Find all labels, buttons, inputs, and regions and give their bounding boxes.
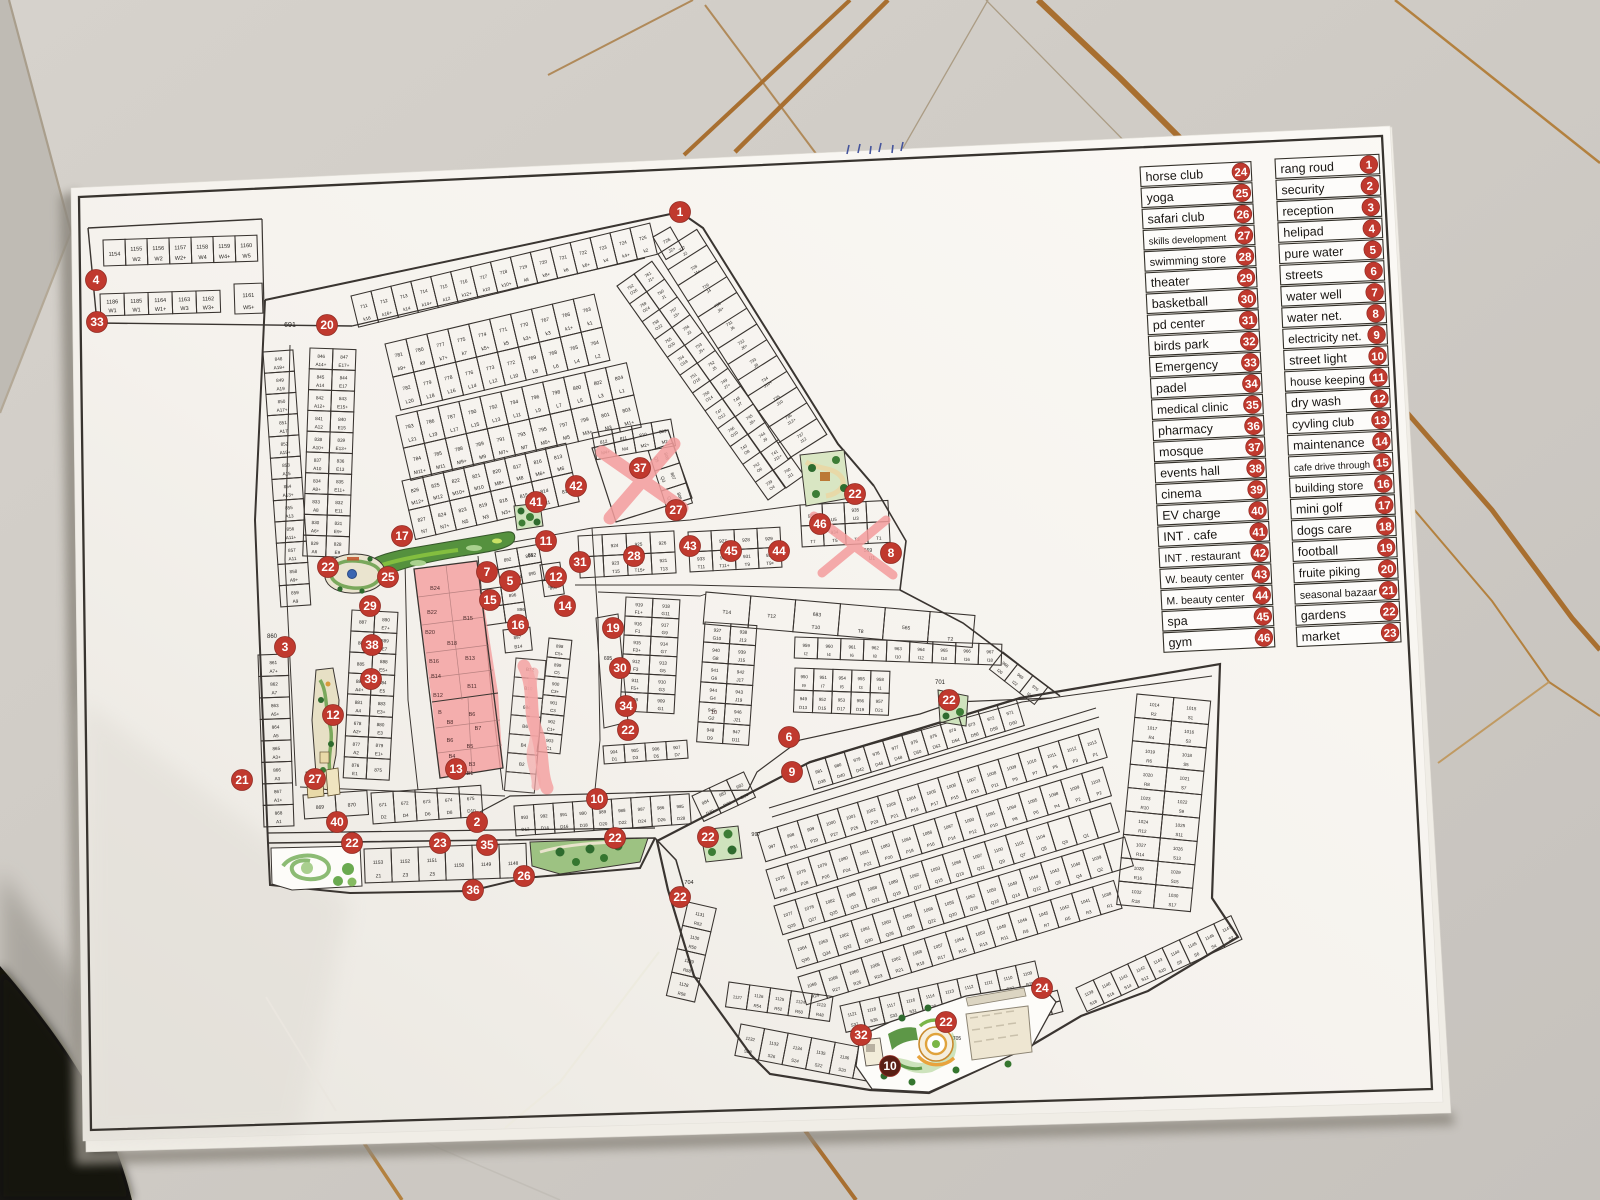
svg-text:22: 22	[345, 836, 359, 850]
svg-text:40: 40	[330, 815, 344, 829]
svg-text:streets: streets	[1285, 267, 1323, 283]
svg-text:A14: A14	[316, 383, 325, 388]
svg-text:32: 32	[854, 1028, 868, 1042]
svg-text:S9: S9	[1178, 809, 1184, 815]
svg-text:A13+: A13+	[282, 492, 293, 498]
svg-text:865: 865	[272, 746, 280, 751]
svg-text:D9: D9	[707, 735, 714, 740]
svg-text:T12: T12	[767, 613, 776, 620]
svg-text:13: 13	[449, 762, 463, 776]
svg-text:923: 923	[612, 560, 620, 565]
svg-text:R12: R12	[1138, 828, 1147, 834]
svg-text:909: 909	[657, 698, 665, 703]
svg-text:G11: G11	[661, 611, 670, 616]
svg-text:848: 848	[275, 356, 283, 362]
svg-text:833: 833	[312, 499, 320, 504]
svg-text:21: 21	[235, 773, 249, 787]
svg-text:B22: B22	[427, 610, 437, 616]
svg-text:B6: B6	[447, 738, 454, 744]
svg-text:rang roud: rang roud	[1280, 160, 1334, 176]
svg-text:horse club: horse club	[1145, 167, 1203, 184]
svg-text:fruite piking: fruite piking	[1299, 564, 1361, 581]
svg-text:860: 860	[267, 634, 278, 640]
svg-text:839: 839	[337, 438, 345, 443]
svg-text:25: 25	[381, 570, 395, 584]
svg-text:10: 10	[590, 792, 604, 806]
svg-text:E3: E3	[377, 730, 383, 735]
svg-text:gym: gym	[1168, 635, 1192, 650]
svg-text:J21: J21	[733, 717, 741, 723]
svg-text:theater: theater	[1150, 274, 1190, 290]
svg-text:862: 862	[270, 682, 278, 687]
svg-text:1028: 1028	[1134, 866, 1145, 872]
svg-text:W1: W1	[132, 307, 140, 313]
svg-text:1029: 1029	[1170, 869, 1181, 875]
svg-text:835: 835	[336, 479, 344, 484]
svg-text:A3+: A3+	[272, 755, 281, 760]
svg-text:water well: water well	[1285, 287, 1342, 304]
svg-text:36: 36	[466, 883, 480, 897]
svg-text:mosque: mosque	[1159, 443, 1204, 459]
svg-text:942: 942	[737, 669, 745, 675]
svg-text:Z1: Z1	[376, 873, 382, 879]
svg-text:D20: D20	[599, 821, 608, 827]
svg-text:14: 14	[1375, 436, 1389, 449]
svg-text:I14: I14	[941, 656, 948, 661]
svg-text:21: 21	[1382, 585, 1396, 598]
svg-text:904: 904	[610, 749, 618, 755]
svg-text:937: 937	[713, 628, 721, 634]
svg-text:955: 955	[857, 676, 865, 681]
svg-text:907: 907	[673, 745, 681, 751]
svg-text:828: 828	[334, 542, 342, 547]
svg-text:4: 4	[1368, 223, 1376, 235]
svg-text:683: 683	[812, 612, 821, 619]
svg-text:847: 847	[340, 354, 348, 359]
svg-text:678: 678	[354, 721, 362, 726]
svg-text:23: 23	[433, 836, 447, 850]
svg-text:safari club: safari club	[1147, 210, 1205, 227]
svg-text:953: 953	[838, 697, 846, 702]
svg-text:1020: 1020	[1143, 772, 1154, 778]
svg-text:956: 956	[857, 698, 865, 703]
svg-text:A17: A17	[279, 428, 288, 434]
svg-text:1162: 1162	[202, 296, 214, 302]
svg-text:W4+: W4+	[219, 254, 231, 260]
svg-text:905: 905	[631, 748, 639, 754]
svg-text:R14: R14	[1136, 852, 1145, 858]
svg-text:R2: R2	[1151, 711, 1158, 717]
svg-text:7: 7	[1371, 287, 1378, 299]
svg-text:W5+: W5+	[243, 305, 255, 311]
svg-text:G5: G5	[659, 668, 666, 673]
svg-text:42: 42	[569, 479, 583, 493]
svg-text:915: 915	[633, 640, 641, 645]
svg-text:A11: A11	[288, 556, 297, 562]
svg-text:D24: D24	[638, 818, 647, 824]
svg-text:705: 705	[953, 1036, 962, 1042]
svg-text:B6: B6	[522, 724, 528, 730]
svg-text:27: 27	[308, 772, 322, 786]
svg-text:D7: D7	[674, 752, 681, 757]
svg-text:944: 944	[709, 687, 717, 693]
svg-text:R10: R10	[1140, 805, 1149, 811]
svg-text:1151: 1151	[427, 858, 438, 864]
svg-text:952: 952	[819, 697, 827, 702]
svg-text:B15: B15	[463, 616, 473, 622]
svg-text:E17+: E17+	[338, 363, 349, 368]
svg-text:855: 855	[285, 505, 293, 511]
svg-text:22: 22	[939, 1015, 953, 1029]
svg-text:A19: A19	[276, 386, 285, 392]
svg-text:W3: W3	[180, 306, 188, 312]
svg-text:834: 834	[313, 478, 321, 483]
svg-text:986: 986	[657, 805, 665, 811]
svg-text:1015: 1015	[1186, 705, 1197, 711]
svg-text:867: 867	[274, 789, 282, 794]
svg-text:18: 18	[1379, 521, 1393, 534]
svg-text:924: 924	[611, 543, 619, 548]
svg-text:849: 849	[276, 377, 284, 383]
svg-text:42: 42	[1253, 548, 1266, 561]
svg-text:832: 832	[335, 500, 343, 505]
svg-text:842: 842	[316, 395, 324, 400]
svg-text:1158: 1158	[196, 244, 208, 250]
svg-text:20: 20	[320, 318, 334, 332]
svg-text:E5+: E5+	[379, 667, 388, 672]
svg-text:845: 845	[317, 374, 325, 379]
svg-text:836: 836	[337, 458, 345, 463]
svg-text:918: 918	[662, 604, 670, 609]
svg-text:T14: T14	[722, 609, 731, 616]
svg-text:B13: B13	[465, 656, 475, 662]
svg-text:R4: R4	[1148, 735, 1155, 741]
svg-text:866: 866	[273, 767, 281, 772]
svg-text:dogs care: dogs care	[1297, 521, 1353, 537]
svg-text:947: 947	[732, 729, 740, 735]
svg-text:A15+: A15+	[279, 450, 290, 456]
svg-text:950: 950	[800, 674, 808, 679]
svg-text:C5+: C5+	[555, 651, 564, 657]
svg-text:985: 985	[676, 804, 684, 810]
svg-text:841: 841	[315, 416, 323, 421]
svg-text:34: 34	[619, 699, 633, 713]
svg-text:1025: 1025	[1175, 822, 1186, 828]
svg-text:T15+: T15+	[634, 567, 645, 573]
svg-text:33: 33	[90, 315, 104, 329]
svg-text:31: 31	[573, 555, 587, 569]
svg-text:674: 674	[445, 797, 453, 803]
svg-text:31: 31	[1242, 315, 1256, 328]
svg-text:900: 900	[552, 681, 560, 687]
svg-text:S11: S11	[1175, 832, 1184, 838]
svg-text:840: 840	[338, 417, 346, 422]
svg-text:1160: 1160	[240, 243, 252, 249]
svg-text:EV charge: EV charge	[1162, 506, 1221, 523]
svg-text:43: 43	[683, 539, 697, 553]
svg-text:D6: D6	[424, 811, 431, 816]
svg-text:880: 880	[377, 722, 385, 727]
svg-text:17: 17	[1378, 500, 1391, 513]
svg-text:1017: 1017	[1147, 725, 1158, 731]
svg-text:879: 879	[375, 743, 383, 748]
svg-text:864: 864	[272, 724, 280, 729]
svg-text:844: 844	[340, 375, 348, 380]
svg-text:1186: 1186	[106, 299, 118, 305]
svg-text:A4+: A4+	[355, 687, 364, 692]
svg-text:870: 870	[347, 802, 356, 809]
svg-text:A8+: A8+	[312, 487, 321, 492]
svg-text:W2+: W2+	[175, 255, 187, 261]
svg-text:35: 35	[1246, 400, 1260, 413]
svg-text:34: 34	[1245, 378, 1259, 391]
svg-text:E17: E17	[339, 384, 348, 389]
svg-text:1154: 1154	[108, 252, 120, 258]
svg-text:1: 1	[1365, 159, 1373, 171]
svg-text:D14: D14	[541, 825, 550, 831]
svg-text:1153: 1153	[373, 860, 384, 866]
svg-text:W3+: W3+	[203, 305, 215, 311]
svg-text:R18: R18	[1131, 898, 1140, 904]
svg-text:I12: I12	[918, 655, 925, 660]
svg-text:A7: A7	[271, 690, 277, 695]
svg-text:46: 46	[1257, 632, 1270, 645]
svg-text:A8: A8	[313, 508, 319, 513]
svg-text:857: 857	[288, 547, 296, 553]
svg-text:D21: D21	[875, 708, 884, 713]
svg-text:pure water: pure water	[1284, 245, 1344, 262]
svg-text:birds park: birds park	[1154, 337, 1210, 354]
svg-text:939: 939	[738, 649, 746, 655]
svg-text:1150: 1150	[454, 863, 465, 869]
svg-text:38: 38	[1249, 463, 1263, 476]
svg-text:A5+: A5+	[271, 712, 280, 717]
svg-text:B20: B20	[425, 630, 435, 636]
svg-text:29: 29	[363, 599, 377, 613]
svg-text:22: 22	[621, 723, 635, 737]
svg-text:913: 913	[659, 660, 667, 665]
svg-text:E15+: E15+	[337, 404, 348, 409]
svg-text:23: 23	[1383, 628, 1396, 641]
svg-text:B11: B11	[467, 684, 476, 690]
svg-text:856: 856	[286, 526, 294, 532]
svg-text:T13: T13	[660, 566, 669, 571]
svg-text:S15: S15	[1170, 879, 1179, 885]
svg-text:B8: B8	[447, 720, 454, 726]
svg-text:898: 898	[556, 643, 564, 649]
svg-text:890: 890	[382, 617, 390, 622]
svg-text:F3+: F3+	[633, 648, 642, 653]
svg-text:906: 906	[652, 746, 660, 752]
svg-text:E3+: E3+	[377, 709, 386, 714]
svg-text:E9: E9	[334, 550, 340, 555]
svg-text:877: 877	[353, 742, 361, 747]
svg-text:938: 938	[739, 629, 747, 635]
svg-text:A9: A9	[292, 599, 298, 604]
svg-text:Z5: Z5	[430, 871, 436, 877]
svg-text:903: 903	[546, 738, 554, 744]
svg-text:G2: G2	[708, 715, 715, 720]
svg-text:928: 928	[742, 537, 750, 542]
svg-text:876: 876	[351, 763, 359, 768]
svg-text:G7: G7	[660, 649, 667, 654]
svg-text:910: 910	[658, 679, 666, 684]
svg-text:3: 3	[282, 640, 289, 654]
svg-text:988: 988	[618, 808, 626, 814]
svg-text:D13: D13	[799, 705, 808, 710]
svg-text:1: 1	[677, 205, 684, 219]
svg-text:W1: W1	[108, 308, 116, 314]
svg-text:J19: J19	[735, 697, 743, 703]
svg-text:846: 846	[317, 354, 325, 359]
svg-text:7: 7	[484, 565, 491, 579]
svg-text:951: 951	[819, 675, 827, 680]
svg-text:997: 997	[751, 832, 760, 838]
svg-text:T11: T11	[697, 564, 705, 569]
svg-text:gardens: gardens	[1300, 607, 1346, 623]
svg-text:940: 940	[712, 648, 720, 654]
svg-text:948: 948	[706, 727, 714, 733]
svg-text:1149: 1149	[481, 862, 492, 868]
svg-text:T10: T10	[811, 625, 820, 632]
svg-text:cinema: cinema	[1161, 486, 1202, 502]
svg-text:22: 22	[1383, 606, 1396, 619]
svg-text:D3: D3	[632, 755, 639, 760]
svg-text:3: 3	[1367, 202, 1374, 214]
svg-text:D1: D1	[611, 756, 618, 761]
svg-text:901: 901	[550, 700, 558, 706]
svg-text:G4: G4	[709, 696, 716, 701]
svg-text:1156: 1156	[152, 246, 164, 252]
svg-text:921: 921	[659, 558, 667, 563]
svg-text:852: 852	[280, 441, 288, 447]
svg-text:C3: C3	[550, 708, 557, 714]
svg-text:F1: F1	[635, 629, 641, 634]
svg-text:704: 704	[684, 880, 693, 886]
svg-text:931: 931	[743, 554, 751, 559]
svg-text:838: 838	[314, 437, 322, 442]
svg-text:875: 875	[374, 767, 382, 772]
svg-text:B7: B7	[475, 726, 482, 732]
svg-text:10: 10	[1371, 351, 1384, 364]
svg-text:837: 837	[314, 458, 322, 463]
svg-text:943: 943	[735, 689, 743, 695]
svg-text:T9+: T9+	[766, 561, 775, 566]
svg-text:946: 946	[734, 709, 742, 715]
svg-text:1163: 1163	[178, 297, 190, 303]
svg-text:887: 887	[359, 619, 367, 624]
svg-text:I18: I18	[987, 658, 994, 663]
svg-text:A11+: A11+	[286, 535, 297, 541]
svg-text:1024: 1024	[1138, 819, 1149, 825]
svg-text:22: 22	[673, 890, 687, 904]
svg-text:851: 851	[279, 420, 287, 426]
svg-text:dry wash: dry wash	[1291, 394, 1342, 410]
svg-text:39: 39	[364, 672, 378, 686]
svg-text:I16: I16	[964, 657, 971, 662]
svg-text:4: 4	[93, 273, 100, 287]
svg-text:26: 26	[1236, 209, 1249, 222]
svg-text:990: 990	[579, 810, 587, 816]
svg-text:941: 941	[711, 668, 719, 674]
svg-text:966: 966	[963, 648, 971, 653]
svg-text:yoga: yoga	[1146, 190, 1174, 205]
svg-text:20: 20	[1381, 564, 1394, 577]
svg-text:22: 22	[608, 831, 622, 845]
svg-text:W1+: W1+	[155, 307, 167, 313]
svg-text:987: 987	[637, 806, 645, 812]
svg-text:1018: 1018	[1182, 752, 1193, 758]
svg-text:water net.: water net.	[1286, 309, 1342, 326]
svg-text:959: 959	[802, 643, 810, 648]
svg-text:963: 963	[894, 646, 902, 651]
svg-text:A9+: A9+	[290, 577, 299, 583]
svg-text:A12+: A12+	[314, 403, 325, 408]
svg-text:10: 10	[883, 1059, 897, 1073]
svg-text:B2: B2	[519, 761, 525, 767]
svg-text:854: 854	[283, 484, 291, 490]
svg-text:15: 15	[1376, 457, 1390, 470]
svg-text:675: 675	[467, 796, 475, 802]
svg-text:A15: A15	[282, 471, 291, 477]
svg-text:967: 967	[986, 649, 994, 654]
svg-text:U5: U5	[831, 517, 838, 522]
svg-text:D26: D26	[657, 817, 666, 823]
svg-text:16: 16	[1377, 479, 1390, 492]
svg-text:A3: A3	[274, 776, 280, 781]
svg-text:22: 22	[321, 560, 335, 574]
svg-text:B12: B12	[433, 693, 443, 699]
svg-text:A13: A13	[285, 513, 294, 519]
svg-text:E11: E11	[335, 508, 343, 513]
svg-text:917: 917	[661, 622, 669, 627]
svg-text:S5: S5	[1183, 762, 1189, 768]
svg-text:J15: J15	[738, 657, 746, 663]
svg-text:673: 673	[423, 799, 431, 805]
svg-text:41: 41	[529, 495, 543, 509]
svg-text:W4: W4	[198, 255, 206, 261]
svg-text:Z3: Z3	[403, 872, 409, 878]
svg-text:25: 25	[1235, 188, 1249, 201]
svg-text:C1+: C1+	[547, 726, 556, 732]
svg-text:830: 830	[311, 520, 319, 525]
svg-text:958: 958	[876, 677, 884, 682]
svg-text:pharmacy: pharmacy	[1158, 421, 1214, 438]
svg-text:1148: 1148	[508, 861, 519, 867]
svg-text:helipad: helipad	[1283, 224, 1324, 240]
svg-text:33: 33	[1244, 357, 1257, 370]
svg-text:1164: 1164	[154, 298, 166, 304]
svg-text:B3: B3	[469, 762, 476, 768]
svg-text:1152: 1152	[400, 859, 411, 865]
svg-text:F5+: F5+	[631, 686, 640, 691]
svg-text:E13+: E13+	[335, 446, 346, 451]
svg-text:G6: G6	[711, 676, 718, 681]
svg-text:A14+: A14+	[315, 362, 326, 367]
svg-text:S3: S3	[1185, 738, 1191, 744]
svg-text:A1+: A1+	[274, 798, 283, 803]
svg-text:38: 38	[365, 638, 379, 652]
svg-text:16: 16	[511, 618, 525, 632]
svg-text:960: 960	[825, 644, 833, 649]
svg-text:E15: E15	[338, 425, 347, 430]
svg-text:911: 911	[631, 678, 639, 683]
svg-text:45: 45	[724, 544, 738, 558]
svg-text:565: 565	[902, 625, 911, 632]
svg-text:A5: A5	[273, 733, 279, 738]
svg-text:B14: B14	[431, 674, 441, 680]
svg-text:security: security	[1281, 181, 1325, 197]
